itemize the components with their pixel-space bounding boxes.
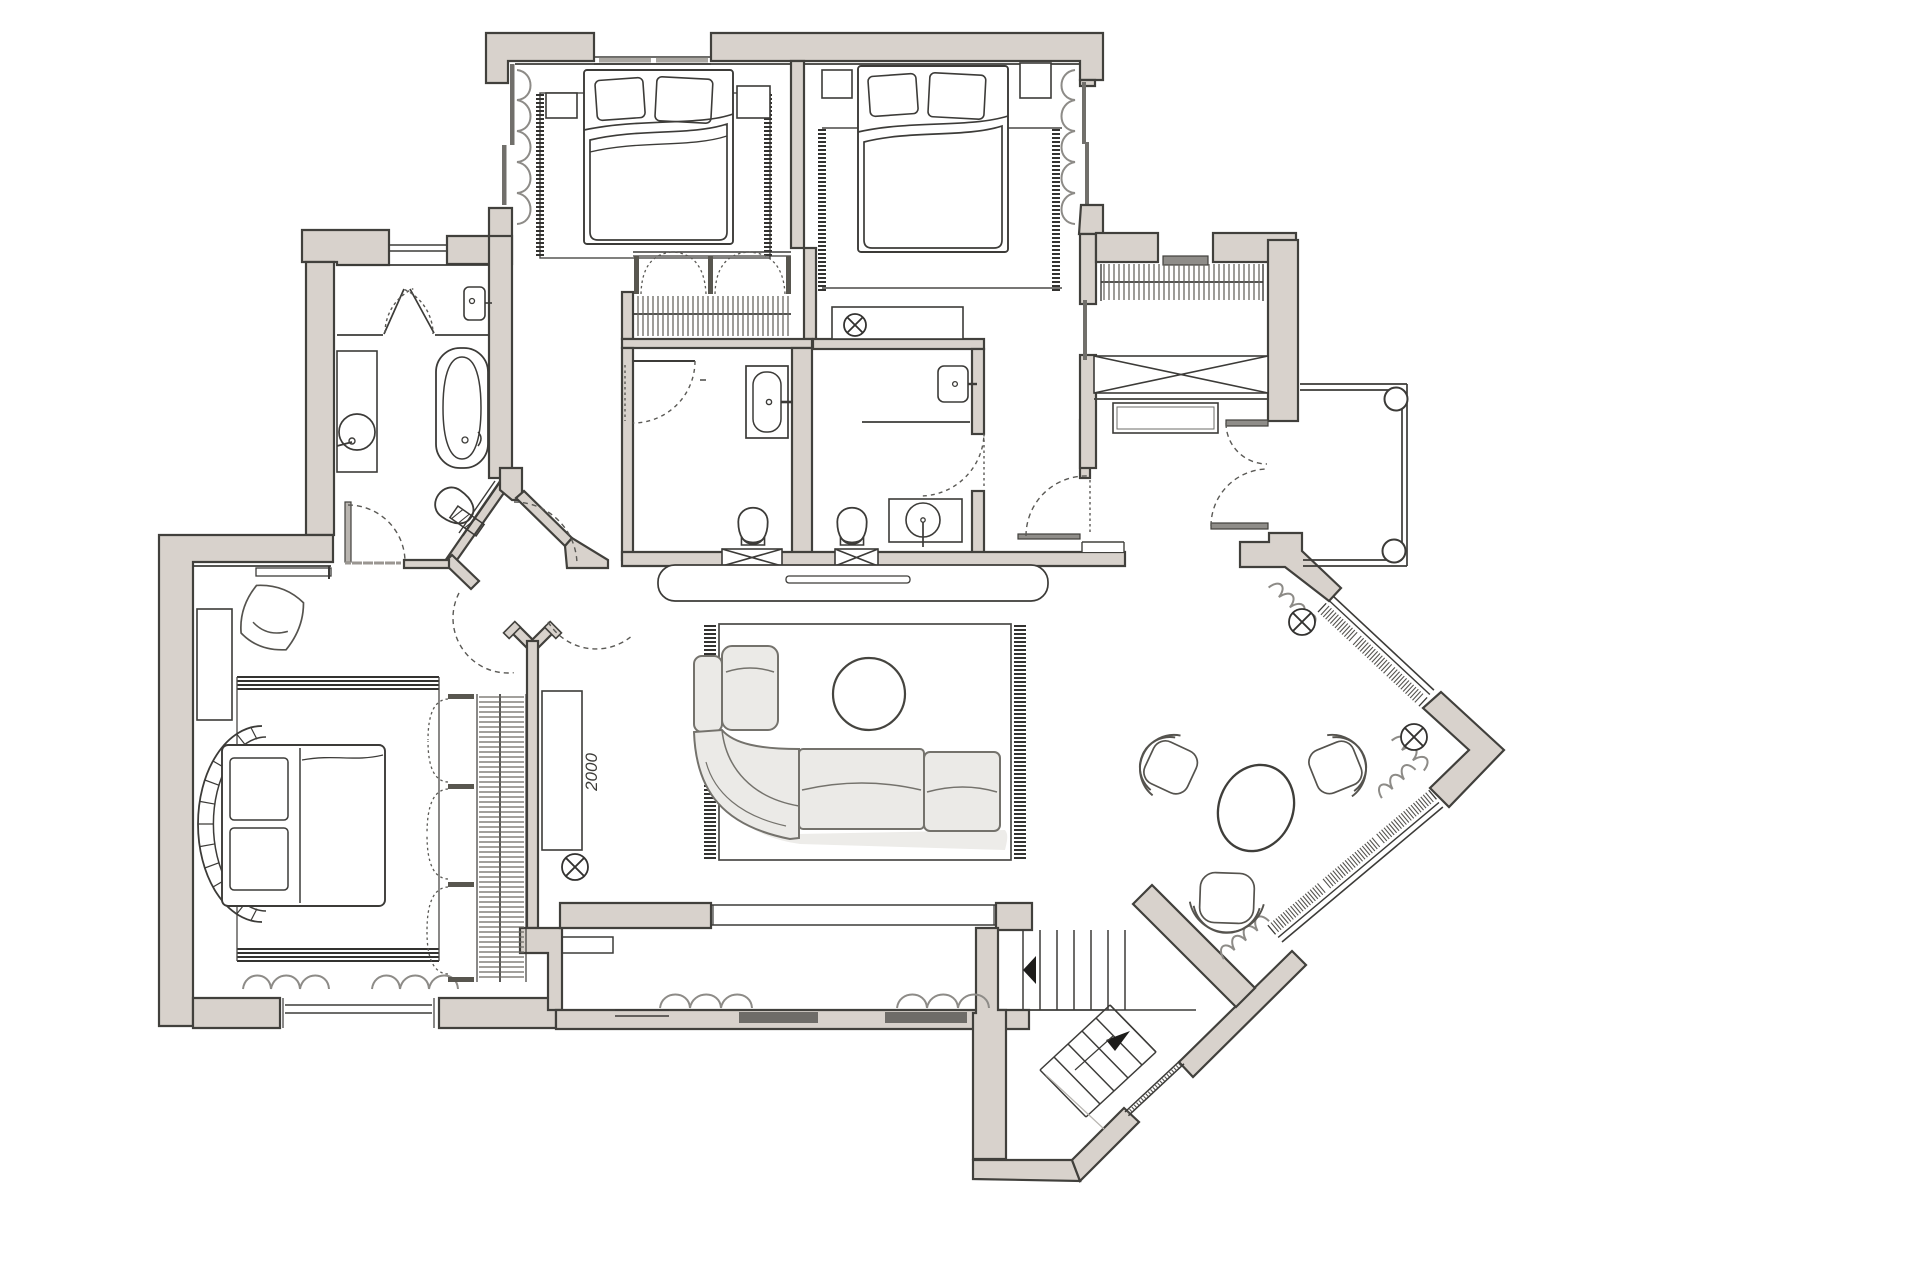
svg-text:2000: 2000 <box>582 753 601 792</box>
